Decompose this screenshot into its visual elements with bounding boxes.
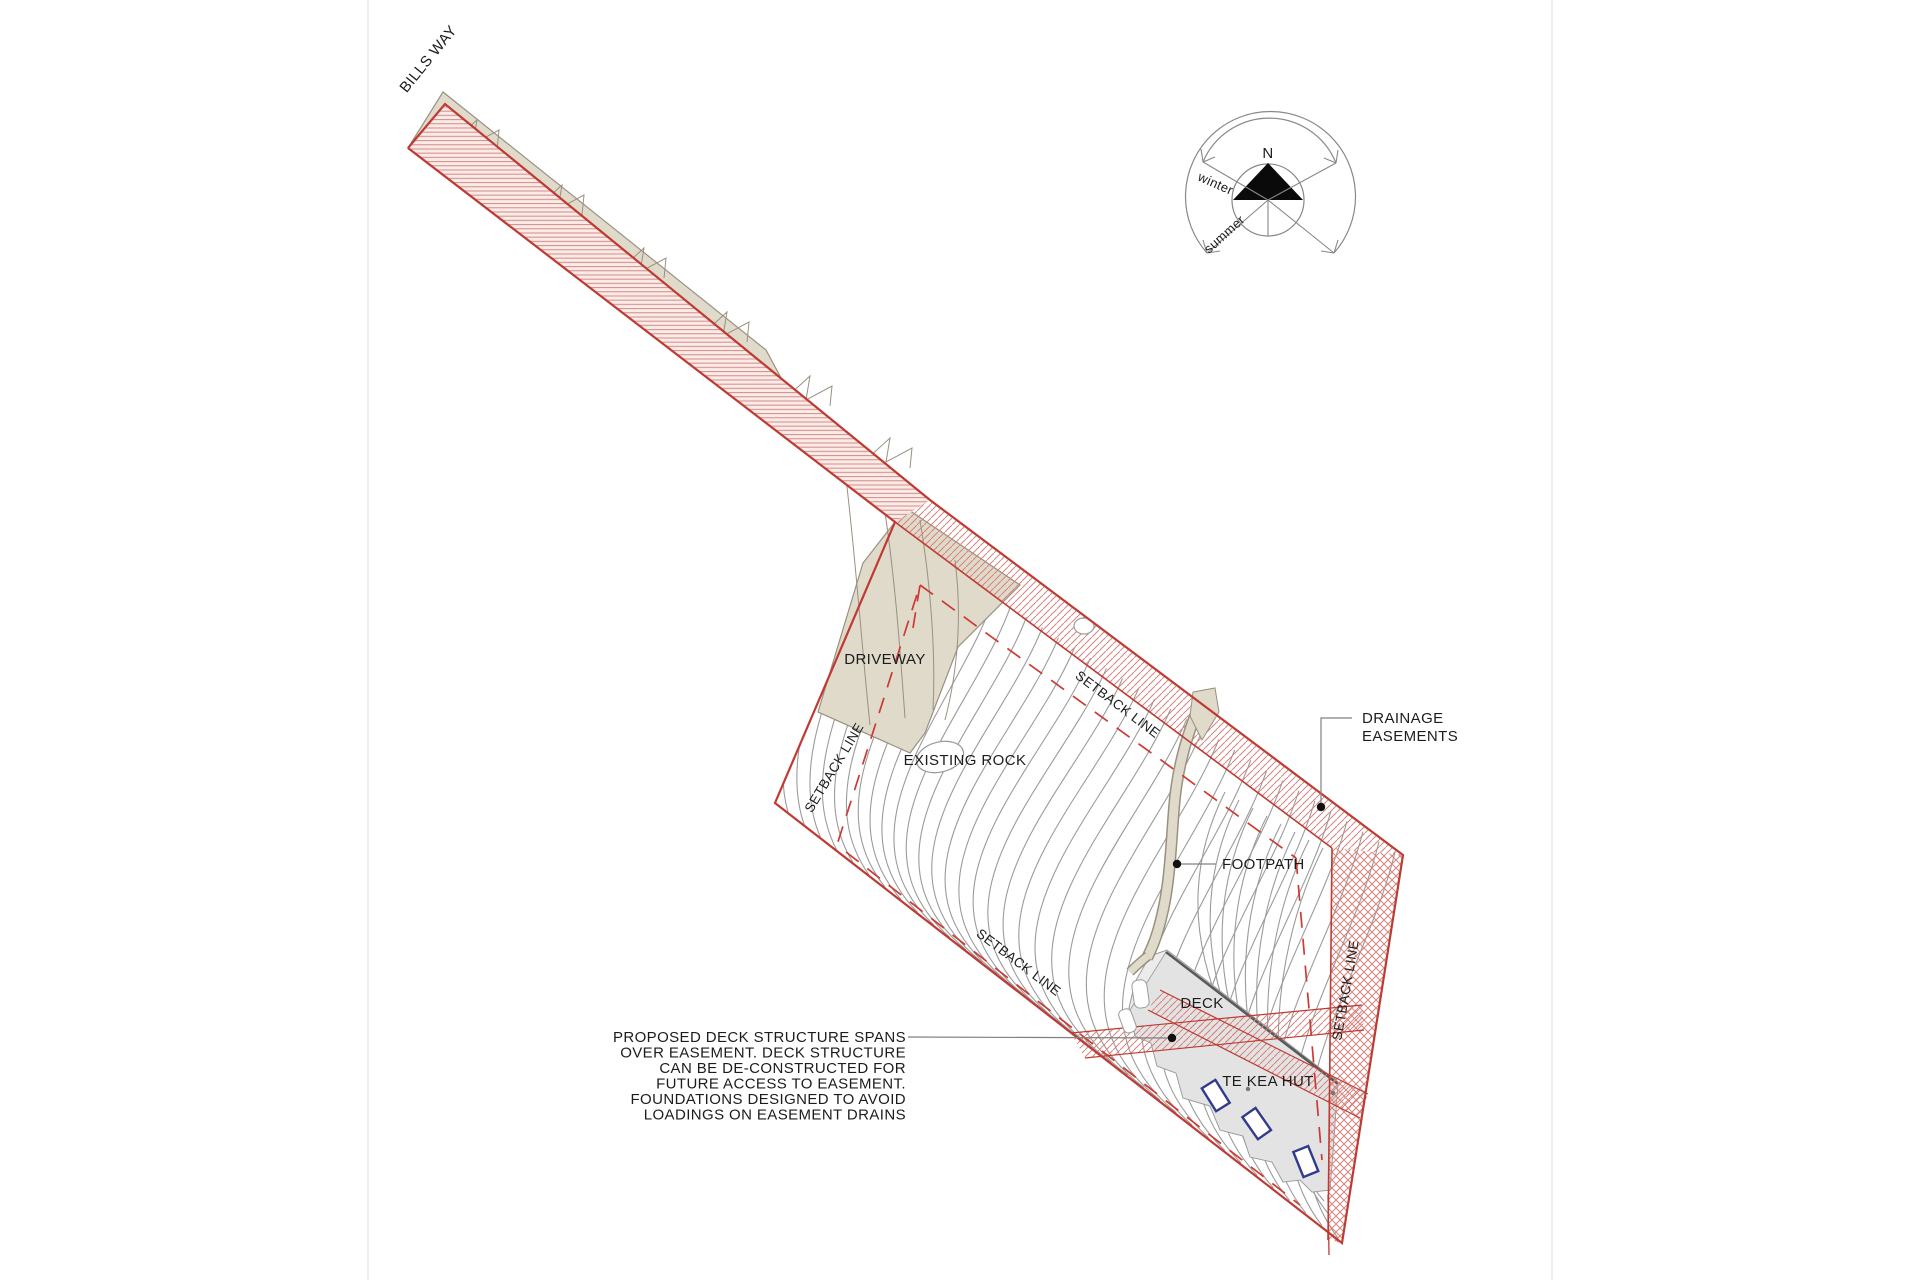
winter-label: winter bbox=[1195, 169, 1236, 198]
setback-line-label-west: SETBACK LINE bbox=[802, 720, 867, 815]
footpath-label: FOOTPATH bbox=[1222, 856, 1305, 873]
annotation-line-2: OVER EASEMENT. DECK STRUCTURE bbox=[620, 1045, 906, 1062]
drainage-leader-dot bbox=[1317, 803, 1325, 811]
site-plan-drawing: N winter summer BILLS WAY DRIVEWAY EXIST… bbox=[0, 0, 1920, 1280]
contour-line bbox=[932, 627, 1043, 962]
ne-easement-hatch bbox=[895, 500, 1403, 855]
strip-inner-redline bbox=[445, 104, 930, 500]
summer-label: summer bbox=[1201, 212, 1248, 256]
north-compass: N winter summer bbox=[1186, 111, 1356, 256]
deck-annotation-block: PROPOSED DECK STRUCTURE SPANS OVER EASEM… bbox=[613, 1029, 906, 1124]
hut-label: TE KEA HUT bbox=[1222, 1073, 1314, 1090]
drainage-easements-label-line1: DRAINAGE bbox=[1362, 710, 1444, 727]
road-name-label: BILLS WAY bbox=[396, 22, 460, 96]
north-arrow-icon bbox=[1233, 163, 1303, 200]
ne-easement-inner-line bbox=[895, 522, 1332, 848]
contour-line bbox=[945, 638, 1058, 975]
site-plan-page: N winter summer BILLS WAY DRIVEWAY EXIST… bbox=[0, 0, 1920, 1280]
annotation-line-3: CAN BE DE-CONSTRUCTED FOR bbox=[659, 1060, 906, 1077]
east-easement-hatch bbox=[1328, 848, 1403, 1243]
existing-rock-label: EXISTING ROCK bbox=[904, 752, 1027, 769]
drainage-easements-label-line2: EASEMENTS bbox=[1362, 728, 1458, 745]
drainage-leader bbox=[1321, 718, 1352, 805]
north-label: N bbox=[1262, 145, 1273, 162]
strip-easement-hatch bbox=[408, 104, 930, 522]
deck-label: DECK bbox=[1180, 995, 1223, 1012]
deck-note-leader-dot bbox=[1168, 1034, 1176, 1042]
annotation-line-5: FOUNDATIONS DESIGNED TO AVOID bbox=[630, 1091, 906, 1108]
roof-dot-2 bbox=[1331, 1091, 1335, 1095]
annotation-line-1: PROPOSED DECK STRUCTURE SPANS bbox=[613, 1029, 906, 1046]
annotation-line-6: LOADINGS ON EASEMENT DRAINS bbox=[644, 1107, 906, 1124]
driveway-label: DRIVEWAY bbox=[844, 651, 926, 668]
footpath-leader-dot bbox=[1173, 860, 1181, 868]
annotation-line-4: FUTURE ACCESS TO EASEMENT. bbox=[656, 1076, 906, 1093]
